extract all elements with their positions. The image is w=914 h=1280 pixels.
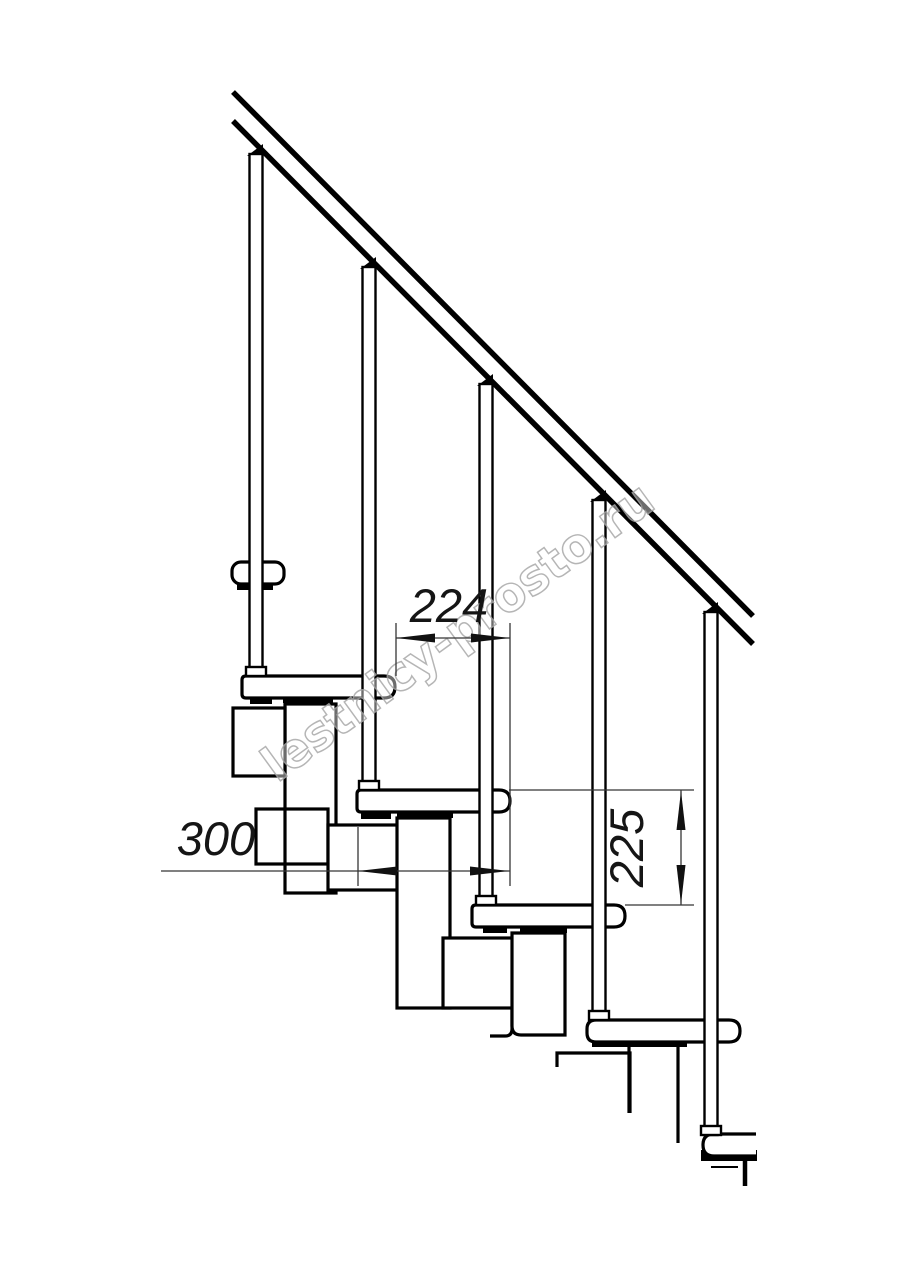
dim-224-label: 224 [409,579,488,632]
dim-225-arrow-up [677,791,686,830]
module-2-sleeve-box [443,938,518,1008]
tread-5-partial [703,1134,756,1156]
module-3-sleeve-partial [557,1053,630,1113]
staircase-technical-drawing: lestnicy-prosto.ru 224 300 225 [0,0,914,1280]
dim-225-label: 225 [600,808,653,888]
module-2-hook [490,1008,512,1036]
staircase-drawing-page: lestnicy-prosto.ru 224 300 225 [0,0,914,1280]
baluster-4 [589,490,609,1020]
baluster-5-collar [701,1126,721,1135]
dim-300-label: 300 [177,812,255,865]
module-1-sleeve-box [328,825,402,890]
baluster-2-collar [359,781,379,790]
module-3-tube [512,933,565,1035]
baluster-4-collar [589,1011,609,1020]
baluster-5 [701,602,721,1135]
baluster-3-collar [476,896,496,905]
dim-225-arrow-down [677,865,686,904]
baluster-1 [246,144,266,676]
baluster-1-collar [246,667,266,676]
